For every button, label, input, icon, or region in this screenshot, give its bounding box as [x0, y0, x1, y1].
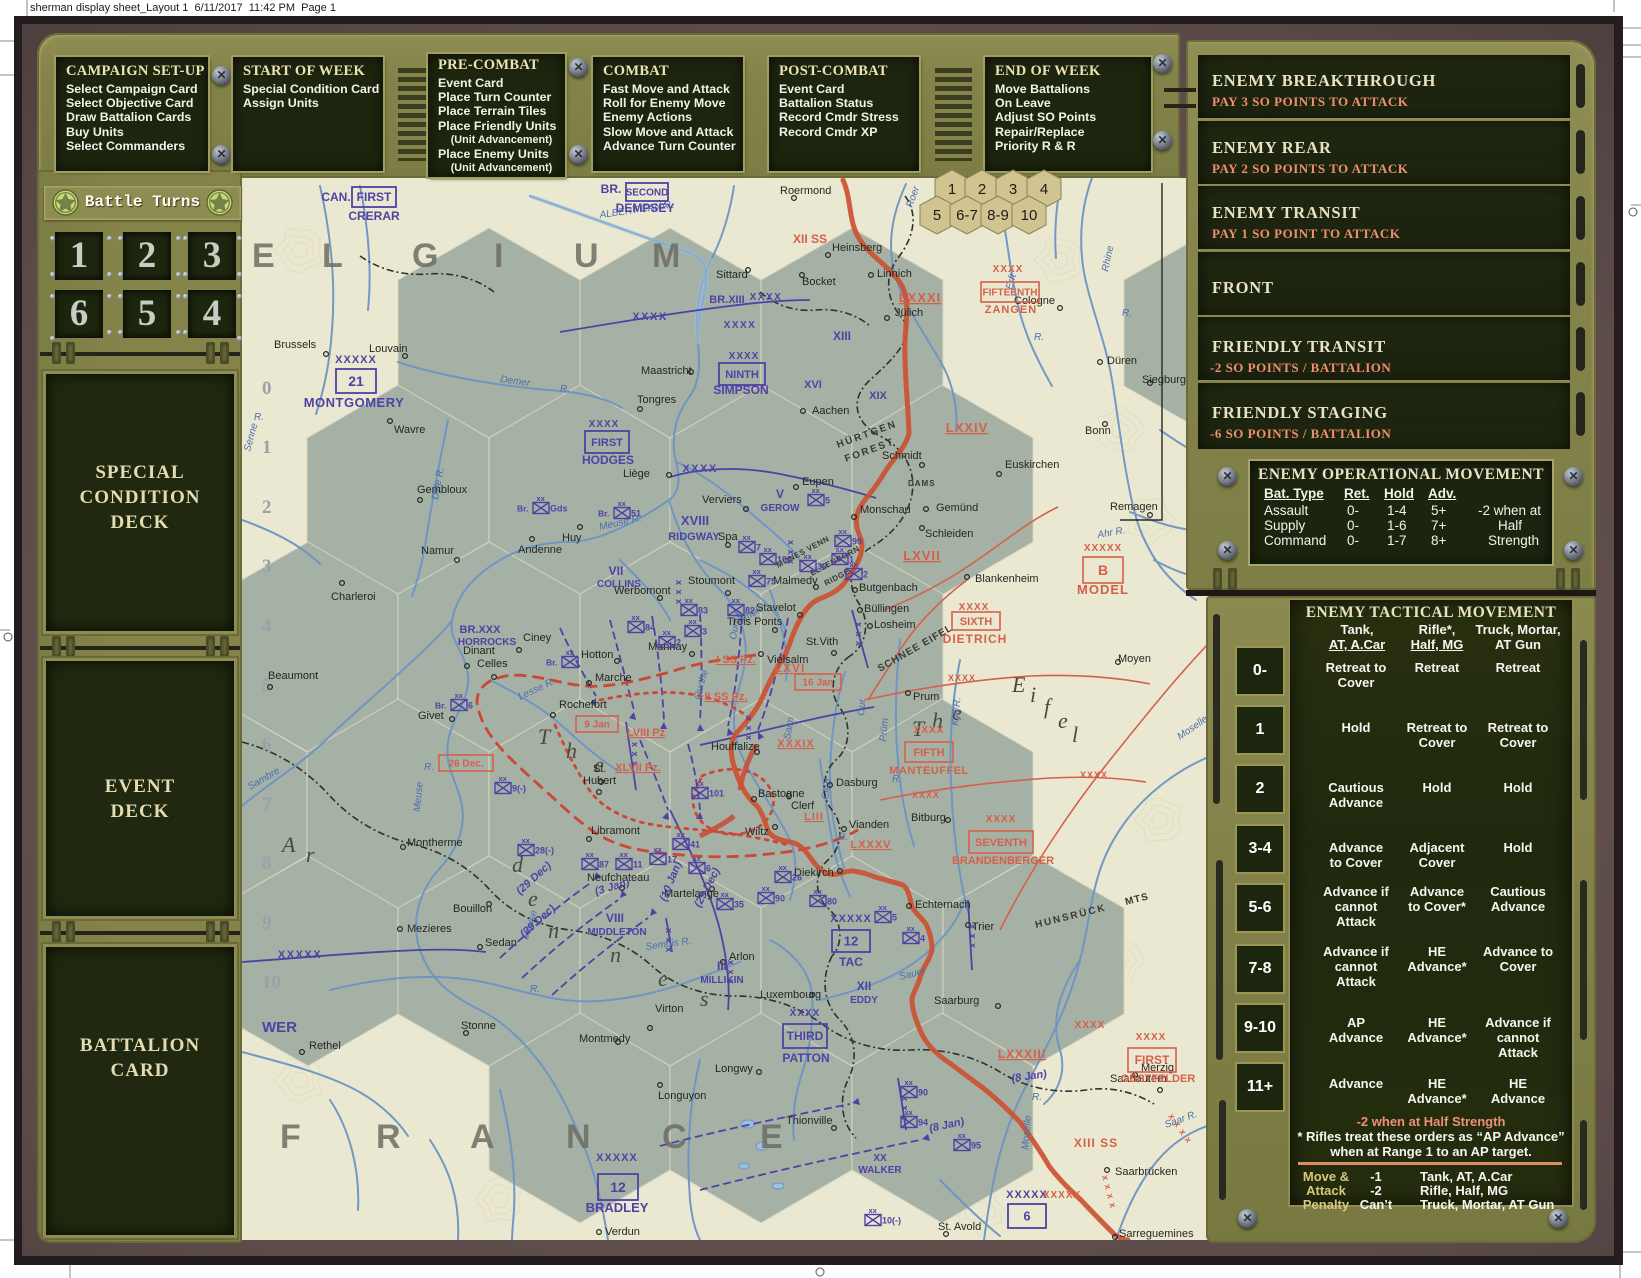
- svg-text:DEMPSEY: DEMPSEY: [616, 201, 675, 215]
- svg-text:Mezieres: Mezieres: [407, 923, 452, 935]
- svg-text:XXXX: XXXX: [948, 673, 976, 683]
- svg-text:7: 7: [262, 794, 272, 815]
- svg-text:BRADLEY: BRADLEY: [586, 1200, 649, 1215]
- svg-text:CRERAR: CRERAR: [348, 209, 400, 223]
- svg-text:3: 3: [1009, 181, 1017, 198]
- svg-text:Namur: Namur: [421, 545, 454, 557]
- svg-text:xx: xx: [677, 830, 686, 839]
- svg-text:XXXX: XXXX: [912, 790, 940, 800]
- svg-text:XXXX: XXXX: [750, 292, 783, 303]
- svg-text:XIII SS: XIII SS: [1074, 1136, 1118, 1150]
- svg-text:Gembloux: Gembloux: [417, 484, 468, 496]
- svg-text:BR.XXX: BR.XXX: [460, 624, 502, 636]
- svg-text:r: r: [306, 842, 315, 867]
- svg-text:Our: Our: [856, 698, 868, 716]
- svg-text:Givet: Givet: [418, 710, 444, 722]
- svg-text:Br.: Br.: [435, 701, 446, 711]
- svg-text:105: 105: [777, 555, 792, 565]
- svg-text:Roermond: Roermond: [780, 185, 831, 197]
- svg-text:41: 41: [690, 840, 700, 850]
- svg-text:XII: XII: [857, 979, 872, 993]
- svg-text:XXXX: XXXX: [986, 814, 1017, 825]
- svg-text:xx: xx: [814, 887, 823, 896]
- svg-text:xx: xx: [958, 1131, 967, 1140]
- svg-text:U: U: [574, 237, 599, 275]
- svg-text:xx: xx: [689, 617, 698, 626]
- svg-text:R.: R.: [838, 832, 848, 843]
- svg-text:C: C: [662, 1118, 687, 1156]
- svg-text:Dasburg: Dasburg: [836, 777, 878, 789]
- svg-text:n: n: [548, 918, 559, 943]
- svg-text:94: 94: [918, 1118, 928, 1128]
- svg-text:0: 0: [262, 378, 272, 399]
- svg-text:x x x: x x x: [726, 960, 736, 985]
- svg-text:87: 87: [599, 860, 609, 870]
- svg-text:Gemünd: Gemünd: [936, 502, 978, 514]
- svg-text:Bastogne: Bastogne: [758, 788, 804, 800]
- svg-text:h: h: [566, 738, 577, 763]
- svg-text:Libramont: Libramont: [591, 825, 640, 837]
- svg-text:35: 35: [734, 900, 744, 910]
- svg-text:A: A: [280, 832, 296, 857]
- svg-text:Schmidt: Schmidt: [882, 450, 922, 462]
- svg-text:FIRST: FIRST: [1135, 1053, 1170, 1067]
- svg-text:R.: R.: [1122, 308, 1132, 319]
- svg-text:10(-): 10(-): [882, 1216, 901, 1226]
- svg-text:Andenne: Andenne: [518, 544, 562, 556]
- svg-text:xx: xx: [654, 845, 663, 854]
- svg-text:LIII: LIII: [804, 811, 824, 823]
- svg-text:90: 90: [775, 894, 785, 904]
- svg-text:FIRST: FIRST: [591, 437, 623, 449]
- svg-text:COLLINS: COLLINS: [597, 579, 641, 590]
- svg-text:xx: xx: [618, 499, 627, 508]
- svg-text:Marche: Marche: [595, 672, 632, 684]
- svg-text:xx: xx: [586, 850, 595, 859]
- svg-text:BR.XIII: BR.XIII: [709, 294, 744, 306]
- svg-text:Euskirchen: Euskirchen: [1005, 459, 1059, 471]
- svg-text:Bitburg: Bitburg: [911, 812, 946, 824]
- svg-text:Trois Ponts: Trois Ponts: [727, 616, 783, 628]
- svg-text:xx: xx: [905, 1108, 914, 1117]
- svg-text:II SS Pz.: II SS Pz.: [705, 691, 748, 703]
- svg-text:XXXX: XXXX: [1075, 1020, 1106, 1031]
- svg-text:R.: R.: [254, 412, 264, 423]
- svg-text:LXVII: LXVII: [903, 548, 941, 563]
- svg-text:Schleiden: Schleiden: [925, 528, 973, 540]
- svg-text:Prum: Prum: [913, 691, 939, 703]
- svg-text:XXXX: XXXX: [682, 463, 717, 475]
- svg-text:e: e: [658, 966, 668, 991]
- svg-text:St. Avold: St. Avold: [938, 1221, 981, 1233]
- svg-text:Butgenbach: Butgenbach: [859, 582, 918, 594]
- svg-text:WALKER: WALKER: [858, 1165, 902, 1176]
- svg-text:28(-): 28(-): [535, 846, 554, 856]
- svg-text:Charleroi: Charleroi: [331, 591, 376, 603]
- svg-text:Bouillon: Bouillon: [453, 903, 492, 915]
- svg-text:III: III: [717, 959, 727, 973]
- svg-text:MANTEUFFEL: MANTEUFFEL: [889, 765, 969, 777]
- svg-text:NINTH: NINTH: [725, 369, 759, 381]
- svg-text:xx: xx: [836, 545, 845, 554]
- svg-text:xx: xx: [499, 774, 508, 783]
- svg-text:SECOND: SECOND: [626, 188, 669, 199]
- svg-text:XXXX: XXXX: [1136, 1032, 1167, 1043]
- svg-text:DIETRICH: DIETRICH: [943, 632, 1008, 646]
- svg-text:RIDGWAY: RIDGWAY: [668, 531, 720, 543]
- svg-text:Stonne: Stonne: [461, 1020, 496, 1032]
- svg-text:5: 5: [933, 207, 941, 224]
- svg-text:xx: xx: [839, 527, 848, 536]
- svg-text:2: 2: [676, 638, 681, 648]
- svg-text:xx: xx: [620, 850, 629, 859]
- svg-text:Büllingen: Büllingen: [864, 603, 909, 615]
- svg-text:5: 5: [892, 913, 897, 923]
- svg-text:6: 6: [706, 864, 711, 874]
- svg-text:BR.: BR.: [601, 182, 622, 196]
- svg-text:xx: xx: [779, 863, 788, 872]
- svg-text:BRANDENBERGER: BRANDENBERGER: [952, 855, 1054, 867]
- svg-text:F: F: [280, 1118, 301, 1156]
- svg-text:Br.: Br.: [546, 658, 557, 668]
- svg-text:Moyen: Moyen: [1118, 653, 1151, 665]
- svg-text:Longwy: Longwy: [715, 1063, 753, 1075]
- svg-text:Bonn: Bonn: [1085, 425, 1111, 437]
- svg-text:Br.: Br.: [598, 509, 609, 519]
- svg-text:XX: XX: [873, 1153, 887, 1164]
- svg-text:MONTGOMERY: MONTGOMERY: [304, 395, 405, 410]
- svg-text:83: 83: [698, 606, 708, 616]
- svg-text:Jülich: Jülich: [895, 307, 923, 319]
- svg-text:THIRD: THIRD: [787, 1029, 824, 1043]
- svg-text:xx: xx: [693, 854, 702, 863]
- svg-text:Malmedy: Malmedy: [773, 575, 818, 587]
- svg-text:T: T: [538, 724, 552, 749]
- svg-text:2: 2: [978, 181, 986, 198]
- svg-text:E: E: [760, 1118, 783, 1156]
- svg-text:Sarreguemines: Sarreguemines: [1119, 1228, 1194, 1240]
- svg-text:E: E: [252, 237, 275, 275]
- svg-text:XXXX: XXXX: [632, 311, 667, 323]
- svg-text:2: 2: [262, 497, 272, 518]
- svg-text:Saarbrücken: Saarbrücken: [1115, 1166, 1177, 1178]
- svg-text:7: 7: [756, 543, 761, 553]
- svg-text:9: 9: [262, 913, 272, 934]
- svg-text:x x x: x x x: [854, 622, 864, 647]
- svg-text:Losheim: Losheim: [874, 619, 916, 631]
- svg-text:XIX: XIX: [869, 390, 887, 402]
- svg-text:I: I: [494, 237, 503, 275]
- svg-text:6: 6: [1023, 1209, 1030, 1224]
- svg-text:HODGES: HODGES: [582, 453, 634, 467]
- svg-text:11: 11: [633, 860, 643, 870]
- svg-text:Sittard: Sittard: [716, 269, 748, 281]
- svg-text:21: 21: [348, 373, 364, 389]
- svg-text:101: 101: [709, 789, 724, 799]
- svg-text:LXXXV: LXXXV: [850, 839, 891, 851]
- svg-text:XVIII: XVIII: [681, 513, 709, 528]
- svg-text:x x x: x x x: [744, 716, 754, 741]
- svg-text:XLVII Pz.: XLVII Pz.: [615, 762, 661, 774]
- svg-text:R.: R.: [530, 984, 540, 995]
- svg-text:Remagen: Remagen: [1110, 501, 1158, 513]
- svg-text:SIMPSON: SIMPSON: [713, 383, 768, 397]
- svg-text:OBSTFELDER: OBSTFELDER: [1121, 1073, 1196, 1085]
- svg-text:xx: xx: [804, 552, 813, 561]
- svg-text:VII: VII: [609, 564, 624, 578]
- svg-text:8-9: 8-9: [987, 207, 1009, 224]
- svg-text:2: 2: [863, 570, 868, 580]
- svg-text:12: 12: [844, 934, 858, 949]
- svg-text:1: 1: [262, 437, 272, 458]
- svg-text:xx: xx: [762, 884, 771, 893]
- svg-text:26: 26: [792, 873, 802, 883]
- svg-text:XXXXX: XXXXX: [335, 354, 377, 366]
- svg-text:x x x: x x x: [674, 580, 684, 605]
- svg-text:17: 17: [667, 855, 677, 865]
- svg-text:xx: xx: [537, 494, 546, 503]
- svg-text:B: B: [1098, 562, 1108, 578]
- svg-text:St.Vith: St.Vith: [806, 636, 838, 648]
- svg-text:3: 3: [262, 556, 272, 577]
- svg-text:xx: xx: [663, 628, 672, 637]
- svg-text:x x x: x x x: [664, 928, 674, 953]
- svg-text:R.: R.: [560, 384, 570, 395]
- svg-text:Thionville: Thionville: [786, 1115, 832, 1127]
- svg-text:3: 3: [702, 627, 707, 637]
- svg-text:PATTON: PATTON: [782, 1051, 829, 1065]
- svg-text:xx: xx: [753, 567, 762, 576]
- svg-text:Houffalize: Houffalize: [711, 741, 760, 753]
- svg-text:XXXX: XXXX: [589, 419, 620, 430]
- svg-text:LXXIV: LXXIV: [946, 420, 989, 435]
- svg-text:e: e: [1058, 708, 1068, 733]
- svg-text:xx: xx: [764, 545, 773, 554]
- svg-text:xx: xx: [685, 596, 694, 605]
- svg-text:i: i: [1030, 682, 1036, 707]
- svg-text:XXXXX: XXXXX: [596, 1152, 638, 1164]
- svg-text:Blankenheim: Blankenheim: [975, 573, 1039, 585]
- svg-text:30: 30: [817, 562, 827, 572]
- svg-text:Longuyon: Longuyon: [658, 1090, 706, 1102]
- svg-text:LXXXIII: LXXXIII: [998, 1047, 1046, 1061]
- svg-text:xx: xx: [907, 924, 916, 933]
- svg-text:82: 82: [745, 606, 755, 616]
- svg-text:xx: xx: [566, 648, 575, 657]
- svg-text:6-7: 6-7: [956, 207, 978, 224]
- svg-text:xx: xx: [850, 560, 859, 569]
- svg-text:Echternach: Echternach: [915, 899, 971, 911]
- svg-text:Vianden: Vianden: [849, 819, 889, 831]
- svg-text:xx: xx: [743, 533, 752, 542]
- svg-text:xx: xx: [905, 1078, 914, 1087]
- svg-text:Sedan: Sedan: [485, 937, 517, 949]
- svg-text:Aachen: Aachen: [812, 405, 849, 417]
- svg-text:ZANGEN: ZANGEN: [985, 304, 1037, 316]
- svg-text:xx: xx: [455, 691, 464, 700]
- svg-text:XXXX: XXXX: [790, 1008, 821, 1019]
- svg-text:G: G: [412, 237, 438, 275]
- svg-text:DAMS: DAMS: [908, 479, 936, 488]
- svg-text:XXXXX: XXXXX: [1084, 543, 1122, 554]
- svg-text:Linnich: Linnich: [877, 268, 912, 280]
- svg-text:LXVI: LXVI: [775, 661, 806, 675]
- svg-text:Gds: Gds: [550, 504, 568, 514]
- svg-text:L: L: [322, 237, 343, 275]
- svg-text:1: 1: [948, 181, 956, 198]
- svg-text:FIFTH: FIFTH: [913, 747, 944, 759]
- svg-text:4: 4: [1040, 181, 1048, 198]
- svg-text:51: 51: [631, 509, 641, 519]
- svg-text:xx: xx: [721, 890, 730, 899]
- svg-text:XXXX: XXXX: [724, 320, 757, 331]
- svg-text:Liège: Liège: [623, 468, 650, 480]
- svg-text:FIRST: FIRST: [357, 190, 392, 204]
- svg-text:8: 8: [262, 853, 272, 874]
- svg-text:FIFTEENTH: FIFTEENTH: [983, 288, 1038, 299]
- svg-text:XXXXX: XXXXX: [1006, 1189, 1048, 1201]
- svg-text:90: 90: [918, 1088, 928, 1098]
- svg-text:6: 6: [262, 734, 272, 755]
- svg-text:TAC: TAC: [839, 955, 863, 969]
- svg-text:St.: St.: [593, 763, 606, 775]
- svg-text:Beaumont: Beaumont: [268, 670, 318, 682]
- svg-text:GEROW: GEROW: [761, 503, 800, 514]
- svg-text:Monschau: Monschau: [860, 504, 911, 516]
- svg-text:R.: R.: [1032, 1092, 1042, 1103]
- svg-text:R.: R.: [424, 762, 434, 773]
- svg-text:Verviers: Verviers: [702, 494, 742, 506]
- svg-text:N: N: [566, 1118, 591, 1156]
- svg-text:I SS Pz.: I SS Pz.: [716, 654, 756, 666]
- svg-text:XXXX: XXXX: [729, 351, 760, 362]
- svg-text:84: 84: [645, 623, 655, 633]
- svg-text:SIXTH: SIXTH: [960, 616, 992, 628]
- svg-text:R: R: [376, 1118, 401, 1156]
- svg-text:xx: xx: [696, 779, 705, 788]
- svg-text:l: l: [1072, 722, 1078, 747]
- svg-text:XXXX: XXXX: [914, 725, 945, 736]
- svg-text:75: 75: [766, 577, 776, 587]
- svg-text:95: 95: [971, 1141, 981, 1151]
- svg-text:CAN.: CAN.: [321, 190, 350, 204]
- svg-text:Prüm: Prüm: [878, 717, 891, 742]
- svg-text:XXXXX: XXXXX: [1043, 1190, 1081, 1201]
- svg-text:Spa: Spa: [718, 531, 738, 543]
- svg-text:XXXX: XXXX: [1080, 770, 1108, 780]
- svg-text:x x x: x x x: [968, 924, 978, 949]
- svg-text:Virton: Virton: [655, 1003, 684, 1015]
- svg-text:E: E: [1011, 672, 1026, 697]
- svg-text:Tongres: Tongres: [637, 394, 677, 406]
- svg-text:Celles: Celles: [477, 658, 508, 670]
- svg-text:Wavre: Wavre: [394, 424, 425, 436]
- svg-text:xx: xx: [812, 486, 821, 495]
- svg-text:MIDDLETON: MIDDLETON: [587, 927, 646, 938]
- svg-text:12: 12: [610, 1179, 626, 1195]
- svg-text:Saarburg: Saarburg: [934, 995, 979, 1007]
- svg-text:Montmedy: Montmedy: [579, 1033, 631, 1045]
- svg-text:XIII: XIII: [833, 329, 851, 343]
- svg-text:Düren: Düren: [1107, 355, 1137, 367]
- svg-text:XXXXX: XXXXX: [830, 913, 872, 925]
- svg-text:R.: R.: [1034, 332, 1044, 343]
- svg-text:Siegburg: Siegburg: [1142, 374, 1186, 386]
- svg-text:SEVENTH: SEVENTH: [975, 837, 1027, 849]
- svg-text:Verdun: Verdun: [605, 1226, 640, 1238]
- svg-text:Rochefort: Rochefort: [559, 699, 607, 711]
- svg-text:Huy: Huy: [562, 532, 582, 544]
- svg-text:Ciney: Ciney: [523, 632, 552, 644]
- svg-text:5: 5: [825, 496, 830, 506]
- svg-text:Stoumont: Stoumont: [688, 575, 735, 587]
- svg-text:10: 10: [262, 972, 281, 993]
- svg-text:EDDY: EDDY: [850, 995, 878, 1006]
- svg-text:Brussels: Brussels: [274, 339, 317, 351]
- svg-text:WER: WER: [262, 1019, 297, 1036]
- svg-text:Wiltz: Wiltz: [745, 826, 769, 838]
- svg-text:9 Jan: 9 Jan: [584, 720, 610, 731]
- svg-text:Maastricht: Maastricht: [641, 365, 692, 377]
- svg-text:Luxembourg: Luxembourg: [760, 989, 821, 1001]
- svg-text:n: n: [610, 942, 621, 967]
- svg-text:16 Jan: 16 Jan: [802, 678, 833, 689]
- svg-text:V: V: [776, 487, 784, 501]
- svg-text:xx: xx: [879, 903, 888, 912]
- svg-text:XXXX: XXXX: [993, 264, 1024, 275]
- svg-text:Montherme: Montherme: [407, 837, 463, 849]
- svg-text:xx: xx: [732, 596, 741, 605]
- svg-text:LXXXI: LXXXI: [899, 290, 942, 305]
- svg-text:Rethel: Rethel: [309, 1040, 341, 1052]
- svg-text:4: 4: [920, 934, 925, 944]
- svg-text:HORROCKS: HORROCKS: [458, 637, 517, 648]
- svg-text:M: M: [652, 237, 680, 275]
- svg-text:xx: xx: [522, 836, 531, 845]
- svg-text:Stavelot: Stavelot: [756, 602, 796, 614]
- svg-text:80: 80: [827, 897, 837, 907]
- svg-text:LVIII Pz: LVIII Pz: [627, 727, 666, 739]
- svg-text:XXXXX: XXXXX: [278, 949, 322, 961]
- svg-text:xx: xx: [632, 613, 641, 622]
- svg-text:Bocket: Bocket: [802, 276, 836, 288]
- svg-text:99: 99: [852, 537, 862, 547]
- svg-text:XVI: XVI: [804, 379, 822, 391]
- svg-text:Hubert: Hubert: [583, 775, 616, 787]
- svg-text:26 Dec.: 26 Dec.: [448, 759, 483, 770]
- svg-text:XII SS: XII SS: [793, 232, 827, 246]
- svg-text:Br.: Br.: [517, 504, 528, 514]
- svg-text:10: 10: [1021, 207, 1038, 224]
- svg-text:VIII: VIII: [606, 911, 624, 925]
- svg-text:MILLIKIN: MILLIKIN: [700, 975, 743, 986]
- svg-text:6: 6: [468, 701, 473, 711]
- svg-text:xx: xx: [869, 1206, 878, 1215]
- svg-text:s: s: [700, 986, 709, 1011]
- svg-text:MODEL: MODEL: [1077, 582, 1129, 597]
- svg-text:4: 4: [262, 616, 272, 637]
- svg-text:9(-): 9(-): [512, 784, 526, 794]
- svg-text:A: A: [470, 1118, 495, 1156]
- svg-text:Hotton: Hotton: [581, 649, 613, 661]
- svg-text:Heinsberg: Heinsberg: [832, 242, 882, 254]
- svg-text:XXXIX: XXXIX: [777, 738, 814, 750]
